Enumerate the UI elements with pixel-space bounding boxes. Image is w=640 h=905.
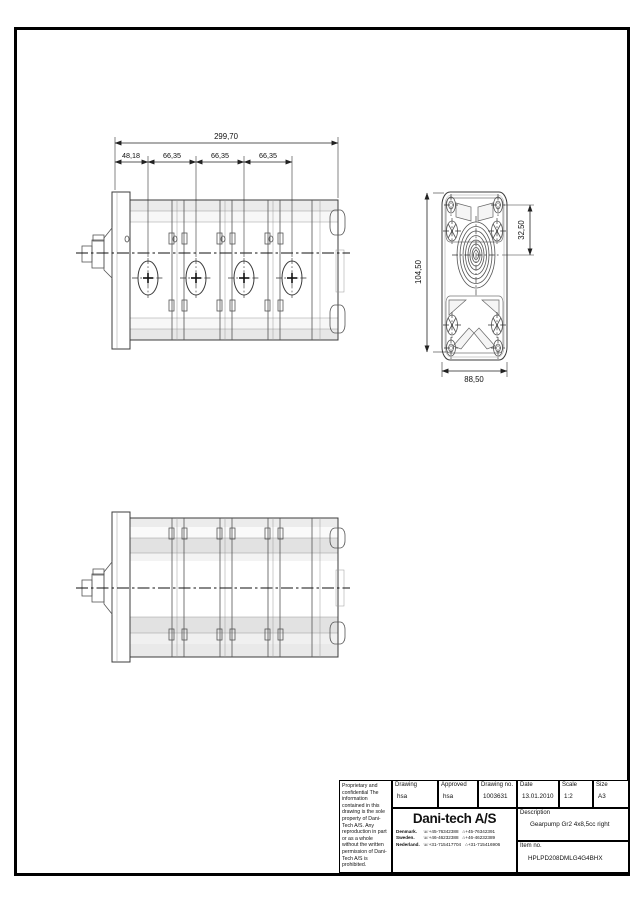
dim-side-total: 299,70: [214, 132, 239, 141]
drawing-no-value: 1003631: [479, 789, 516, 800]
title-block: Proprietary and confidential The informa…: [339, 780, 629, 873]
dim-seg-4: 66,35: [259, 151, 277, 160]
dim-seg-1: 48,18: [122, 151, 140, 160]
corner-bolt-holes: [444, 194, 505, 359]
drawing-label: Drawing: [393, 781, 437, 789]
size-value: A3: [594, 789, 628, 800]
date-cell: Date 13.01.2010: [517, 780, 559, 808]
dim-seg-3: 66,35: [211, 151, 229, 160]
scale-value: 1:2: [560, 789, 592, 800]
side-view-plain: [76, 512, 350, 662]
side-view-ported: 299,70 48,18 66,35 66,35 66,35: [76, 132, 350, 349]
approved-label: Approved: [439, 781, 477, 789]
proprietary-cell: Proprietary and confidential The informa…: [339, 780, 392, 873]
scale-label: Scale: [560, 781, 592, 789]
drawing-sheet: 299,70 48,18 66,35 66,35 66,35: [0, 0, 640, 905]
drawing-views: 299,70 48,18 66,35 66,35 66,35: [0, 0, 640, 905]
scale-cell: Scale 1:2: [559, 780, 593, 808]
contact-phone: +45-76342388: [429, 829, 459, 834]
approved-cell: Approved hsa: [438, 780, 478, 808]
contact-fax: +31-715416906: [468, 842, 500, 847]
dim-end-width: 88,50: [464, 375, 484, 384]
item-no-value: HPLPD208DMLG4G4BHX: [518, 850, 628, 862]
end-view: 104,50 32,50 88,50: [414, 192, 534, 384]
contact-fax: +45-76342391: [465, 829, 495, 834]
drawing-no-label: Drawing no.: [479, 781, 516, 789]
description-value: Gearpump Gr2 4x8,5cc right: [518, 817, 628, 828]
size-cell: Size A3: [593, 780, 629, 808]
contact-fax: +46-46232389: [465, 835, 495, 840]
contact-country: Nederland.: [396, 842, 423, 848]
contact-row: Nederland. ☏+31-715417704 ⌂+31-715416906: [393, 842, 516, 848]
dim-seg-2: 66,35: [163, 151, 181, 160]
date-label: Date: [518, 781, 558, 789]
dim-end-offset: 32,50: [517, 220, 526, 240]
contact-phone: +31-715417704: [429, 842, 461, 847]
approved-value: hsa: [439, 789, 477, 800]
date-value: 13.01.2010: [518, 789, 558, 800]
company-contacts: Denmark. ☏+45-76342388 ⌂+45-76342391 Swe…: [393, 829, 516, 848]
proprietary-text: Proprietary and confidential The informa…: [340, 781, 391, 871]
description-label: Description: [518, 809, 628, 817]
drawing-cell: Drawing hsa: [392, 780, 438, 808]
company-name: Dani-tech A/S: [393, 811, 516, 826]
dim-end-height: 104,50: [414, 259, 423, 284]
end-view-dimensions: 104,50 32,50 88,50: [414, 193, 534, 384]
item-no-label: Item no.: [518, 842, 628, 850]
drawing-value: hsa: [393, 789, 437, 800]
shaft-boss: [452, 216, 500, 296]
drawing-no-cell: Drawing no. 1003631: [478, 780, 517, 808]
item-no-cell: Item no. HPLPD208DMLG4G4BHX: [517, 841, 629, 873]
contact-phone: +46-46232388: [429, 835, 459, 840]
company-cell: Dani-tech A/S Denmark. ☏+45-76342388 ⌂+4…: [392, 808, 517, 873]
description-cell: Description Gearpump Gr2 4x8,5cc right: [517, 808, 629, 841]
size-label: Size: [594, 781, 628, 789]
